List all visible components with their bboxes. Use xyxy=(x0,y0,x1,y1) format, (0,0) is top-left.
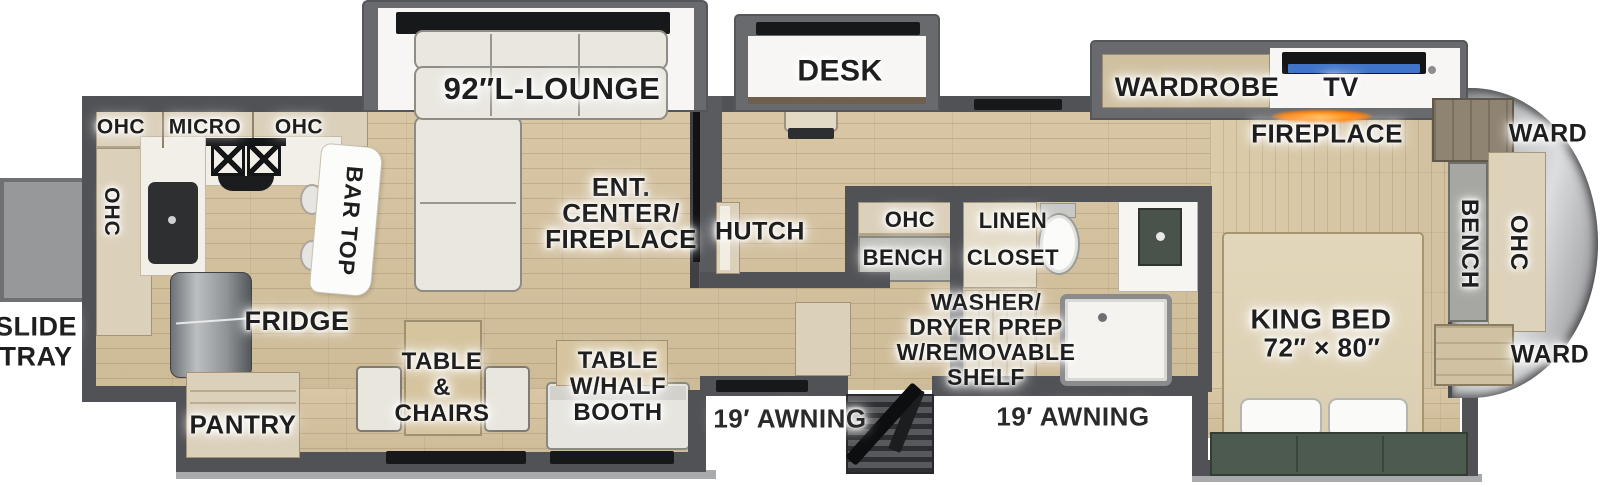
kitchen-ohc-right-label: OHC xyxy=(275,115,323,138)
vanity-faucet-dot xyxy=(1156,232,1165,241)
kitchen-ohc-divider-1 xyxy=(162,112,164,148)
awning-left-label: 19′ AWNING xyxy=(713,405,866,434)
linen-closet-label: LINEN CLOSET xyxy=(967,202,1059,276)
sofa-back-row xyxy=(414,30,668,70)
kitchen-micro-label: MICRO xyxy=(169,115,242,138)
desk-edge xyxy=(748,97,926,104)
desk-window xyxy=(756,22,920,35)
wall-bottom-left xyxy=(82,386,188,402)
fridge-label: FRIDGE xyxy=(244,307,349,337)
lounge-label: 92″L-LOUNGE xyxy=(444,72,661,106)
king-bed-size-label: 72″ × 80″ xyxy=(1264,334,1381,363)
mid-ohc-label: OHC xyxy=(885,208,935,232)
bed-bench-seam-1 xyxy=(1296,436,1298,472)
awning-right-label: 19′ AWNING xyxy=(996,403,1149,432)
wall-left xyxy=(82,96,96,402)
ent-center-label: ENT. CENTER/ FIREPLACE xyxy=(545,174,697,252)
front-ohc-label: OHC xyxy=(1504,215,1532,271)
desk-label: DESK xyxy=(797,55,882,88)
window-top-mid xyxy=(974,99,1062,110)
table-chairs-label: TABLE & CHAIRS xyxy=(394,349,489,427)
half-booth-label: TABLE W/HALF BOOTH xyxy=(570,348,666,426)
rv-floorplan: SLIDE TRAY 92″L-LOUNGE DESK xyxy=(0,0,1600,485)
stove-burner-right xyxy=(247,142,281,176)
sofa-chaise xyxy=(414,116,522,292)
window-dinette-1 xyxy=(386,451,526,464)
shower-drain-dot xyxy=(1098,313,1107,322)
king-bed-label: KING BED xyxy=(1251,305,1392,336)
stove-burner-left xyxy=(211,142,245,176)
kitchen-ohc-left-label: OHC xyxy=(97,115,145,138)
window-door-side-left xyxy=(716,380,808,392)
window-dinette-2 xyxy=(550,451,674,464)
kitchen-ohc-side-label: OHC xyxy=(99,187,123,237)
bath-wall-left xyxy=(845,186,858,286)
hutch-label: HUTCH xyxy=(715,218,805,246)
hutch-run-wall xyxy=(700,272,890,288)
linen-wall xyxy=(950,198,963,290)
dinette-slide-wall-right xyxy=(688,390,706,472)
bed-bench-seam-2 xyxy=(1382,436,1384,472)
bed-foot-bench xyxy=(1210,432,1468,476)
sofa-chaise-seam xyxy=(420,202,516,204)
tv-label: TV xyxy=(1323,73,1359,103)
fridge-icon xyxy=(170,272,252,378)
wardrobe-label: WARDROBE xyxy=(1115,73,1280,103)
bedroom-partition-wall xyxy=(1198,186,1212,392)
entry-side-cabinet xyxy=(795,302,851,376)
slide-tray-label: SLIDE TRAY xyxy=(0,312,77,371)
ward-bottom-label: WARD xyxy=(1511,341,1589,369)
pantry-label: PANTRY xyxy=(190,411,297,440)
stove-hood-arc xyxy=(218,176,274,191)
front-bench-label: BENCH xyxy=(1455,199,1483,289)
pantry-shelf-2 xyxy=(190,402,296,404)
fireplace-label: FIREPLACE xyxy=(1251,120,1403,149)
front-wardrobe-bottom-cabinet xyxy=(1434,324,1514,386)
pantry-shelf-1 xyxy=(190,390,296,392)
washer-prep-label: WASHER/ DRYER PREP W/REMOVABLE SHELF xyxy=(897,290,1076,390)
ward-top-label: WARD xyxy=(1509,120,1587,148)
sink-faucet-dot xyxy=(168,216,176,224)
bath-wall-top xyxy=(845,186,1205,202)
shower-icon xyxy=(1060,294,1172,386)
mid-bench-label: BENCH xyxy=(863,246,944,270)
desk-chair-base xyxy=(788,128,834,139)
dinette-chair-right xyxy=(484,366,530,432)
slide-tray xyxy=(0,178,90,302)
tv-knob xyxy=(1428,66,1436,74)
